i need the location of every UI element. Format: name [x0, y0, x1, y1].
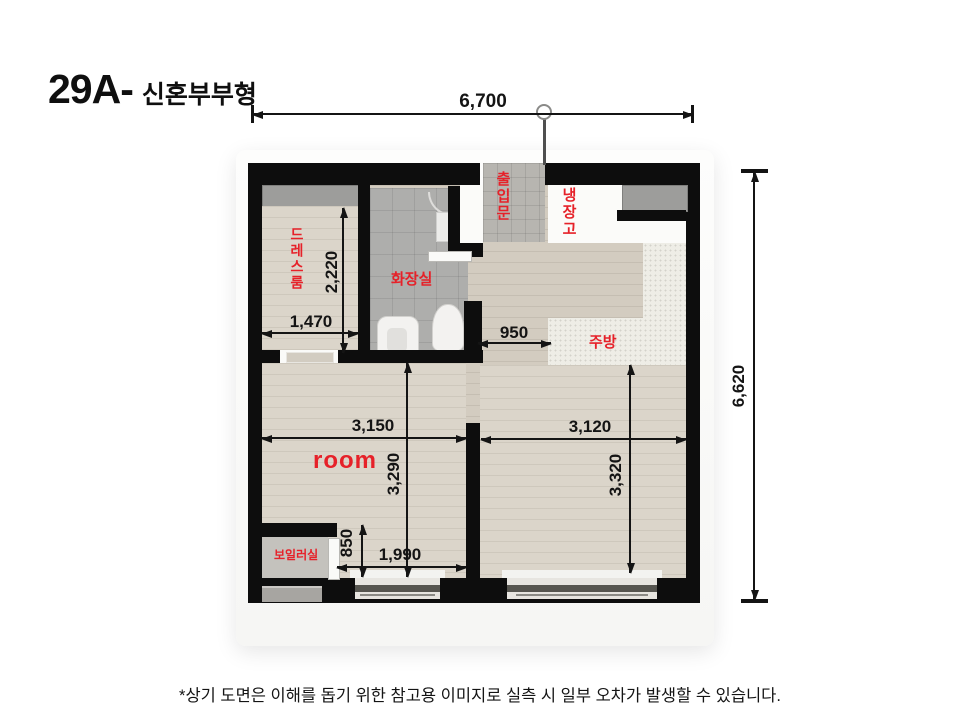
bathroom-label: 화장실 [391, 268, 432, 289]
dim-line-room-lower-width [337, 566, 466, 568]
toilet [432, 304, 464, 352]
window-left [355, 578, 440, 599]
bathroom-door [428, 251, 472, 262]
bath-right-lower-wall [464, 301, 482, 363]
dim-line-overall-height [753, 172, 755, 600]
entry-door-hinge [536, 104, 552, 120]
dim-cap-top [741, 169, 768, 173]
center-divider-wall [466, 423, 480, 578]
dim-label-hall-width: 950 [491, 323, 537, 343]
living-room-floor [480, 365, 686, 578]
dim-line-living-width [481, 438, 686, 440]
sink-basin [387, 328, 407, 352]
dim-label-dress-width: 1,470 [283, 312, 339, 332]
dim-label-dress-depth: 2,220 [322, 244, 342, 300]
boiler-top-wall [248, 523, 337, 537]
window-right [507, 578, 657, 599]
dim-label-room-lower-width: 1,990 [372, 545, 428, 565]
main-room-label: room [313, 447, 377, 475]
dim-tick-right [691, 105, 694, 123]
entry-label: 출입문 [495, 171, 510, 222]
title-block: 29A- 신혼부부형 [48, 66, 257, 113]
dim-label-overall-height: 6,620 [729, 358, 749, 414]
top-wall-right [545, 163, 700, 185]
disclaimer-note: *상기 도면은 이해를 돕기 위한 참고용 이미지로 실측 시 일부 오차가 발… [0, 682, 960, 706]
dress-bath-divider-wall [358, 185, 370, 363]
dressroom-label: 드레스룸 [290, 227, 304, 291]
dressroom-closet [262, 185, 360, 208]
dress-sliding-door [286, 352, 334, 363]
boiler-label: 보일러실 [274, 546, 318, 563]
window-sill-right [502, 570, 662, 578]
right-wall [686, 163, 700, 603]
dim-label-living-depth: 3,320 [606, 447, 626, 503]
dim-line-boiler-depth [361, 525, 363, 577]
dim-line-room-width [262, 437, 466, 439]
top-wall-left [248, 163, 480, 185]
dim-label-boiler-depth: 850 [337, 521, 357, 565]
top-right-cabinet [622, 185, 688, 212]
boiler-window [262, 586, 322, 602]
dim-line-overall-width [253, 113, 693, 115]
top-right-wall-band [617, 210, 686, 221]
dim-line-living-depth [629, 365, 631, 573]
left-wall [248, 163, 262, 603]
dim-label-room-depth: 3,290 [384, 446, 404, 502]
dim-tick-left [251, 105, 254, 123]
kitchen-counter-horizontal [548, 318, 686, 365]
unit-type-name: 신혼부부형 [142, 75, 257, 111]
dim-label-living-width: 3,120 [562, 417, 618, 437]
dim-label-overall-width: 6,700 [448, 91, 518, 113]
dim-cap-bottom [741, 599, 768, 603]
kitchen-label: 주방 [589, 331, 617, 352]
unit-code: 29A- [48, 66, 133, 113]
floorplan-page: { "title": { "code": "29A-", "subtitle":… [0, 0, 960, 720]
entry-tile [483, 163, 545, 242]
fridge-label: 냉장고 [561, 187, 576, 238]
bath-side-nook [460, 185, 483, 243]
dim-line-dress-width [262, 332, 358, 334]
dim-label-room-width: 3,150 [345, 416, 401, 436]
